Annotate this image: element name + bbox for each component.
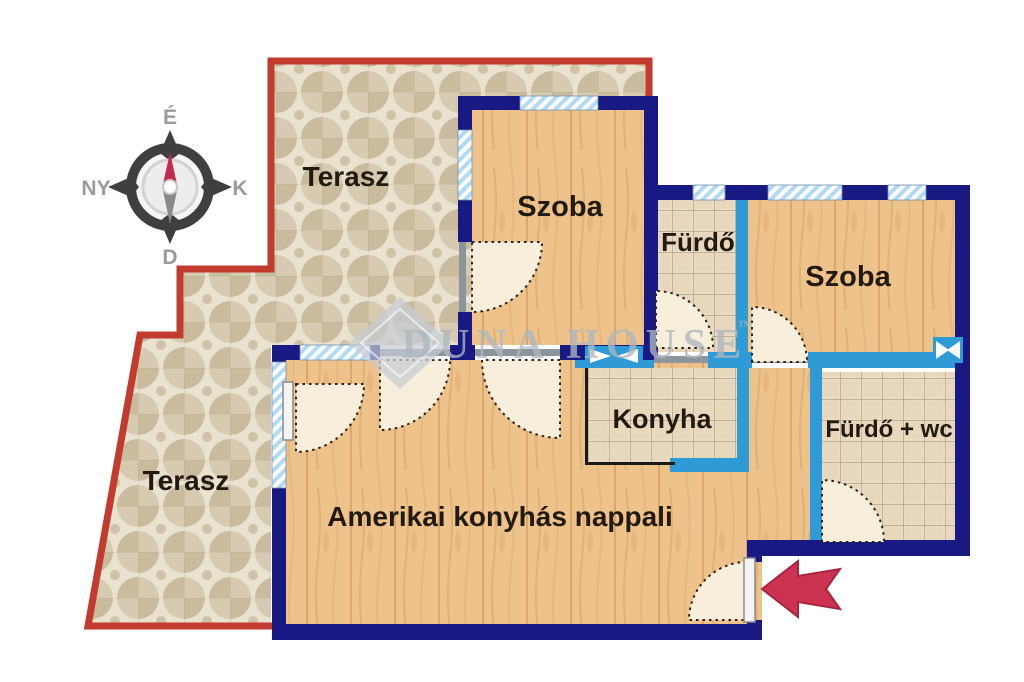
compass: É K D NY [81, 106, 247, 269]
bowtie-window-icon [933, 337, 963, 363]
room-label-terrace-top: Terasz [303, 161, 390, 192]
bedroom1-floor [472, 110, 645, 345]
room-label-living-room: Amerikai konyhás nappali [327, 501, 672, 532]
compass-label-west: NY [81, 177, 110, 200]
room-label-bedroom2: Szoba [805, 261, 891, 293]
watermark-text: DUNA HOUSE [402, 322, 749, 368]
floor-plan: Terasz Terasz Szoba Szoba Fürdő Konyha F… [0, 0, 1024, 682]
bedroom2-window-left [768, 185, 842, 200]
room-label-kitchen: Konyha [612, 404, 712, 434]
bedroom1-left-window [458, 130, 472, 200]
room-label-terrace-left: Terasz [143, 465, 230, 496]
door-leaf [283, 382, 293, 440]
floor-plan-page: Terasz Terasz Szoba Szoba Fürdő Konyha F… [0, 0, 1024, 682]
room-label-bedroom1: Szoba [517, 191, 603, 223]
entrance-door-leaf [744, 558, 755, 622]
compass-label-north: É [163, 106, 177, 129]
entrance-arrow-icon [762, 561, 840, 617]
bedroom2-window-right [888, 185, 926, 200]
room-label-bathroom1: Fürdő [661, 227, 735, 257]
watermark-tm: ™ [738, 319, 752, 334]
room-label-bathroom2: Fürdő + wc [825, 416, 952, 443]
compass-label-east: K [232, 177, 247, 200]
compass-label-south: D [162, 246, 177, 269]
bedroom1-top-window [520, 96, 598, 110]
bathroom1-window [693, 185, 725, 200]
